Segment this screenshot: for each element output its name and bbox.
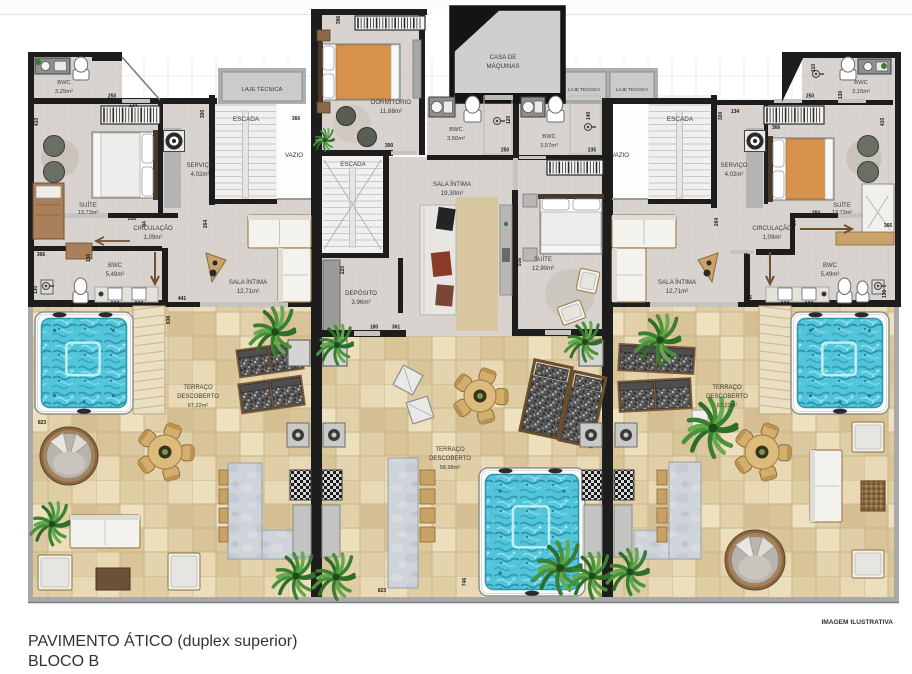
svg-text:250: 250	[812, 211, 821, 217]
svg-text:VAZIO: VAZIO	[611, 152, 629, 159]
svg-text:BWC: BWC	[542, 134, 556, 140]
svg-text:130: 130	[838, 91, 844, 100]
svg-text:823: 823	[38, 420, 47, 426]
svg-text:120: 120	[506, 116, 512, 125]
svg-text:250: 250	[501, 148, 510, 154]
svg-text:13,73m²: 13,73m²	[78, 210, 99, 216]
svg-text:DESCOBERTO: DESCOBERTO	[429, 456, 471, 462]
svg-text:TERRAÇO: TERRAÇO	[435, 447, 465, 453]
svg-text:130: 130	[33, 286, 39, 295]
svg-text:BWC: BWC	[57, 80, 71, 86]
svg-text:SUÍTE: SUÍTE	[79, 202, 97, 209]
svg-text:VAZIO: VAZIO	[285, 152, 303, 159]
svg-text:250: 250	[523, 330, 532, 336]
svg-text:5,49m²: 5,49m²	[821, 272, 840, 278]
svg-text:140: 140	[586, 112, 592, 121]
svg-text:250: 250	[108, 94, 117, 100]
svg-text:LAJE TÉCNICA: LAJE TÉCNICA	[616, 86, 649, 92]
svg-text:134: 134	[731, 109, 740, 115]
svg-text:134: 134	[129, 103, 138, 109]
svg-text:838: 838	[166, 316, 172, 325]
svg-text:366: 366	[37, 252, 46, 258]
svg-text:DESCOBERTO: DESCOBERTO	[177, 394, 219, 400]
svg-text:LAJE TÉCNICA: LAJE TÉCNICA	[242, 86, 283, 93]
svg-text:SUÍTE: SUÍTE	[534, 256, 552, 263]
svg-text:300: 300	[385, 143, 394, 149]
svg-text:130: 130	[882, 290, 888, 299]
svg-text:264: 264	[714, 218, 720, 227]
svg-text:94: 94	[792, 220, 798, 226]
svg-text:4,02m²: 4,02m²	[725, 172, 744, 178]
svg-text:1,09m²: 1,09m²	[144, 235, 163, 241]
svg-text:DORMITÓRIO: DORMITÓRIO	[371, 99, 411, 106]
svg-text:366: 366	[772, 125, 781, 131]
svg-text:220: 220	[340, 266, 346, 275]
svg-text:ESCADA: ESCADA	[340, 161, 366, 168]
svg-text:441: 441	[178, 296, 187, 302]
svg-text:3,50m²: 3,50m²	[447, 136, 465, 142]
svg-text:94: 94	[142, 221, 148, 227]
svg-text:746: 746	[462, 578, 468, 587]
svg-text:13,73m²: 13,73m²	[832, 210, 853, 216]
svg-text:BWC: BWC	[108, 263, 123, 269]
svg-text:150: 150	[744, 253, 750, 262]
svg-text:4,02m²: 4,02m²	[191, 172, 210, 178]
svg-text:110: 110	[811, 64, 817, 72]
svg-text:823: 823	[378, 588, 387, 594]
svg-text:410: 410	[34, 118, 40, 127]
svg-text:250: 250	[128, 216, 137, 222]
svg-text:396: 396	[336, 16, 342, 25]
svg-text:SALA ÍNTIMA: SALA ÍNTIMA	[433, 181, 472, 188]
svg-text:410: 410	[880, 118, 886, 127]
svg-text:SALA ÍNTIMA: SALA ÍNTIMA	[229, 279, 268, 286]
svg-text:12,71m²: 12,71m²	[237, 288, 260, 295]
svg-text:SUÍTE: SUÍTE	[833, 202, 851, 209]
svg-text:19,30m²: 19,30m²	[441, 190, 464, 197]
svg-text:LAJE TÉCNICA: LAJE TÉCNICA	[568, 86, 601, 92]
svg-text:PAVIMENTO ÁTICO (duplex superi: PAVIMENTO ÁTICO (duplex superior)	[28, 631, 297, 650]
svg-text:11,88m²: 11,88m²	[380, 108, 402, 115]
svg-text:SALA ÍNTIMA: SALA ÍNTIMA	[658, 279, 697, 286]
svg-text:3,57m²: 3,57m²	[540, 143, 558, 149]
svg-text:5,49m²: 5,49m²	[106, 272, 125, 278]
svg-text:TERRAÇO: TERRAÇO	[712, 385, 742, 391]
svg-text:12,71m²: 12,71m²	[666, 288, 689, 295]
svg-text:300: 300	[200, 110, 206, 119]
svg-text:MÁQUINAS: MÁQUINAS	[486, 63, 519, 70]
svg-text:264: 264	[203, 220, 209, 229]
svg-text:DESCOBERTO: DESCOBERTO	[706, 394, 748, 400]
svg-text:366: 366	[292, 116, 301, 122]
svg-text:58,98m²: 58,98m²	[440, 465, 461, 471]
svg-text:IMAGEM ILUSTRATIVA: IMAGEM ILUSTRATIVA	[821, 619, 893, 626]
svg-text:SERVIÇO: SERVIÇO	[721, 163, 748, 169]
svg-text:250: 250	[806, 94, 815, 100]
svg-text:DEPÓSITO: DEPÓSITO	[345, 290, 377, 297]
svg-text:3,25m²: 3,25m²	[55, 89, 73, 95]
svg-text:235: 235	[588, 148, 597, 154]
svg-text:SERVIÇO: SERVIÇO	[187, 163, 214, 169]
svg-text:300: 300	[718, 112, 724, 121]
svg-text:12,90m²: 12,90m²	[532, 266, 554, 272]
svg-text:TERRAÇO: TERRAÇO	[183, 385, 213, 391]
svg-text:CASA DE: CASA DE	[490, 54, 517, 61]
svg-text:3,96m²: 3,96m²	[351, 299, 370, 306]
svg-text:1,09m²: 1,09m²	[763, 235, 782, 241]
svg-text:67,22m²: 67,22m²	[188, 403, 209, 409]
svg-text:67,22m²: 67,22m²	[717, 403, 738, 409]
svg-text:180: 180	[370, 325, 379, 331]
svg-text:ESCADA: ESCADA	[667, 116, 694, 123]
svg-text:361: 361	[392, 325, 401, 331]
svg-text:441: 441	[744, 295, 753, 301]
svg-text:CIRCULAÇÃO: CIRCULAÇÃO	[133, 225, 173, 232]
svg-text:BWC: BWC	[854, 80, 868, 86]
svg-text:BWC: BWC	[823, 263, 838, 269]
svg-text:CIRCULAÇÃO: CIRCULAÇÃO	[752, 225, 792, 232]
svg-text:150: 150	[86, 254, 92, 263]
svg-text:BLOCO B: BLOCO B	[28, 653, 99, 670]
svg-text:ESCADA: ESCADA	[233, 116, 260, 123]
svg-text:3,15m²: 3,15m²	[852, 89, 870, 95]
svg-text:BWC: BWC	[449, 127, 463, 133]
svg-text:366: 366	[884, 223, 893, 229]
svg-text:516: 516	[517, 258, 523, 267]
